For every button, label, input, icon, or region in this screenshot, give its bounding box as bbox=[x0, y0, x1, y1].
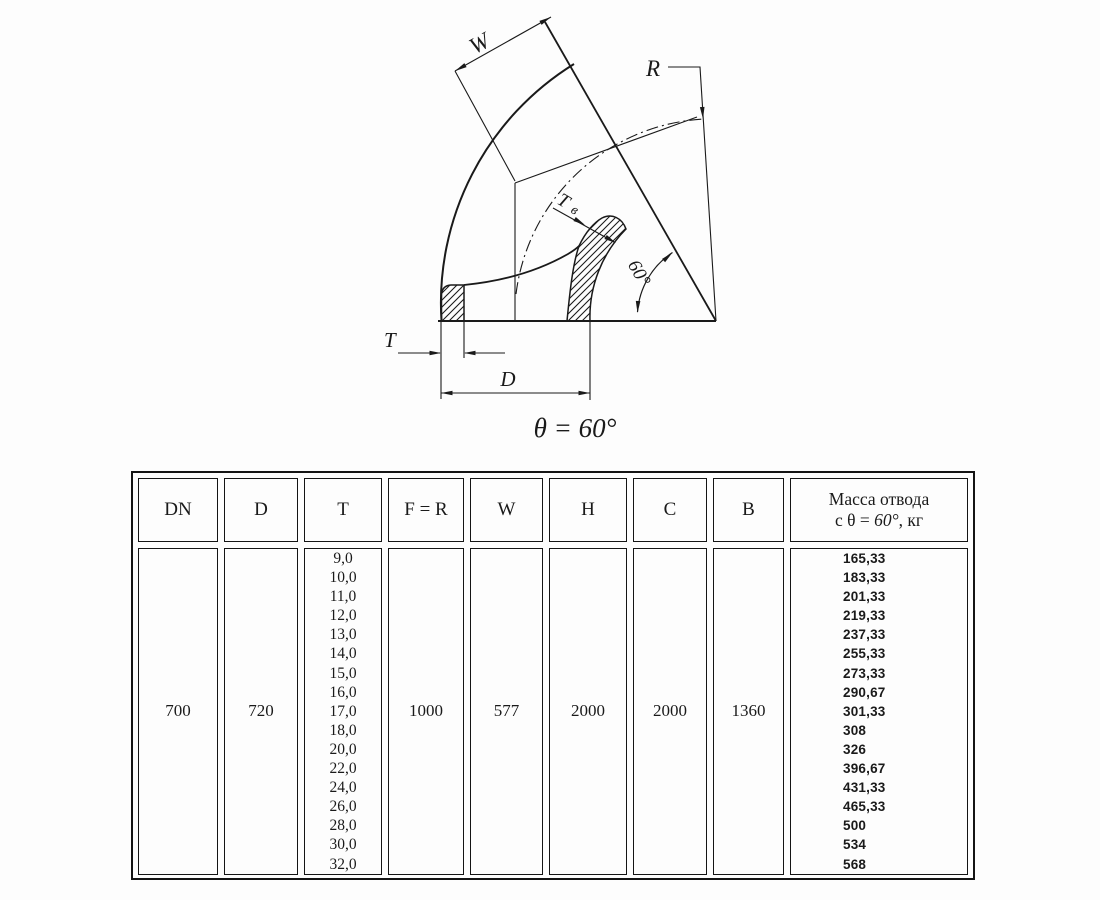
label-angle: 60° bbox=[623, 256, 655, 290]
mass-value: 290,67 bbox=[843, 683, 886, 702]
col-header-d: D bbox=[224, 478, 298, 542]
mass-header-line2: с θ = 60°, кг bbox=[835, 510, 923, 531]
cell-c: 2000 bbox=[633, 548, 707, 875]
mass-value: 165,33 bbox=[843, 549, 886, 568]
t-value: 22,0 bbox=[305, 759, 381, 778]
label-d: D bbox=[499, 367, 515, 391]
mass-value: 219,33 bbox=[843, 606, 886, 625]
mass-value: 534 bbox=[843, 835, 866, 854]
elbow-outer-arc bbox=[441, 64, 574, 321]
cell-t-list: 9,010,011,012,013,014,015,016,017,018,02… bbox=[304, 548, 382, 875]
wall-section-left bbox=[442, 285, 465, 321]
mass-value: 183,33 bbox=[843, 568, 886, 587]
mass-value: 301,33 bbox=[843, 702, 886, 721]
t-value: 11,0 bbox=[305, 587, 381, 606]
cell-h: 2000 bbox=[549, 548, 627, 875]
col-header-fr: F = R bbox=[388, 478, 464, 542]
t-value: 10,0 bbox=[305, 568, 381, 587]
t-value: 18,0 bbox=[305, 721, 381, 740]
cell-d: 720 bbox=[224, 548, 298, 875]
mass-value: 237,33 bbox=[843, 625, 886, 644]
mass-value: 326 bbox=[843, 740, 866, 759]
dimensions-table: DN D T F = R W H C B Масса отвода с θ = … bbox=[131, 471, 975, 880]
mass-value: 431,33 bbox=[843, 778, 886, 797]
mass-values-list: 165,33183,33201,33219,33237,33255,33273,… bbox=[791, 549, 967, 874]
t-value: 28,0 bbox=[305, 816, 381, 835]
cell-fr: 1000 bbox=[388, 548, 464, 875]
label-tv-sub: в bbox=[568, 203, 581, 219]
t-value: 9,0 bbox=[305, 549, 381, 568]
mass-value: 255,33 bbox=[843, 644, 886, 663]
t-value: 20,0 bbox=[305, 740, 381, 759]
t-value: 14,0 bbox=[305, 644, 381, 663]
label-w: W bbox=[465, 27, 495, 59]
mass-value: 568 bbox=[843, 855, 866, 874]
col-header-h: H bbox=[549, 478, 627, 542]
elbow-drawing: W R Т в T D 60° θ = 60° bbox=[0, 0, 1100, 462]
t-value: 17,0 bbox=[305, 702, 381, 721]
centerline-arc bbox=[516, 119, 705, 294]
cell-b: 1360 bbox=[713, 548, 784, 875]
col-header-dn: DN bbox=[138, 478, 218, 542]
t-values-list: 9,010,011,012,013,014,015,016,017,018,02… bbox=[305, 549, 381, 874]
cell-mass-list: 165,33183,33201,33219,33237,33255,33273,… bbox=[790, 548, 968, 875]
cell-dn: 700 bbox=[138, 548, 218, 875]
t-value: 30,0 bbox=[305, 835, 381, 854]
t-value: 12,0 bbox=[305, 606, 381, 625]
t-value: 15,0 bbox=[305, 664, 381, 683]
mass-header-line1: Масса отвода bbox=[829, 489, 929, 510]
mass-value: 308 bbox=[843, 721, 866, 740]
t-value: 13,0 bbox=[305, 625, 381, 644]
col-header-w: W bbox=[470, 478, 543, 542]
t-value: 32,0 bbox=[305, 855, 381, 874]
t-value: 26,0 bbox=[305, 797, 381, 816]
col-header-t: T bbox=[304, 478, 382, 542]
col-header-mass: Масса отвода с θ = 60°, кг bbox=[790, 478, 968, 542]
mass-value: 465,33 bbox=[843, 797, 886, 816]
drawing-caption: θ = 60° bbox=[534, 413, 617, 443]
mass-value: 500 bbox=[843, 816, 866, 835]
mass-value: 201,33 bbox=[843, 587, 886, 606]
arrowheads bbox=[430, 17, 705, 395]
r-leader-line bbox=[668, 67, 716, 321]
t-value: 24,0 bbox=[305, 778, 381, 797]
w-extension-line bbox=[455, 71, 515, 181]
mass-value: 273,33 bbox=[843, 664, 886, 683]
col-header-c: C bbox=[633, 478, 707, 542]
col-header-b: B bbox=[713, 478, 784, 542]
mass-value: 396,67 bbox=[843, 759, 886, 778]
label-t: T bbox=[384, 328, 397, 352]
label-r: R bbox=[645, 56, 660, 81]
cell-w: 577 bbox=[470, 548, 543, 875]
t-value: 16,0 bbox=[305, 683, 381, 702]
